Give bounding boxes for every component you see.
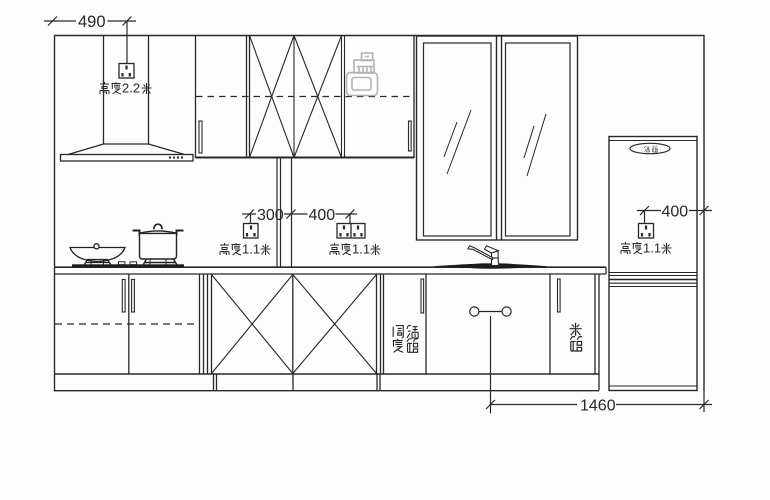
svg-text:1.1: 1.1 — [242, 242, 260, 257]
svg-text:1.1: 1.1 — [643, 241, 661, 256]
svg-text:490: 490 — [78, 13, 106, 31]
svg-text:2.2: 2.2 — [122, 81, 140, 96]
svg-text:400: 400 — [662, 204, 689, 221]
svg-text:1.1: 1.1 — [352, 242, 370, 257]
svg-text:1460: 1460 — [580, 398, 616, 415]
svg-text:300: 300 — [257, 207, 284, 224]
svg-text:400: 400 — [309, 207, 336, 224]
